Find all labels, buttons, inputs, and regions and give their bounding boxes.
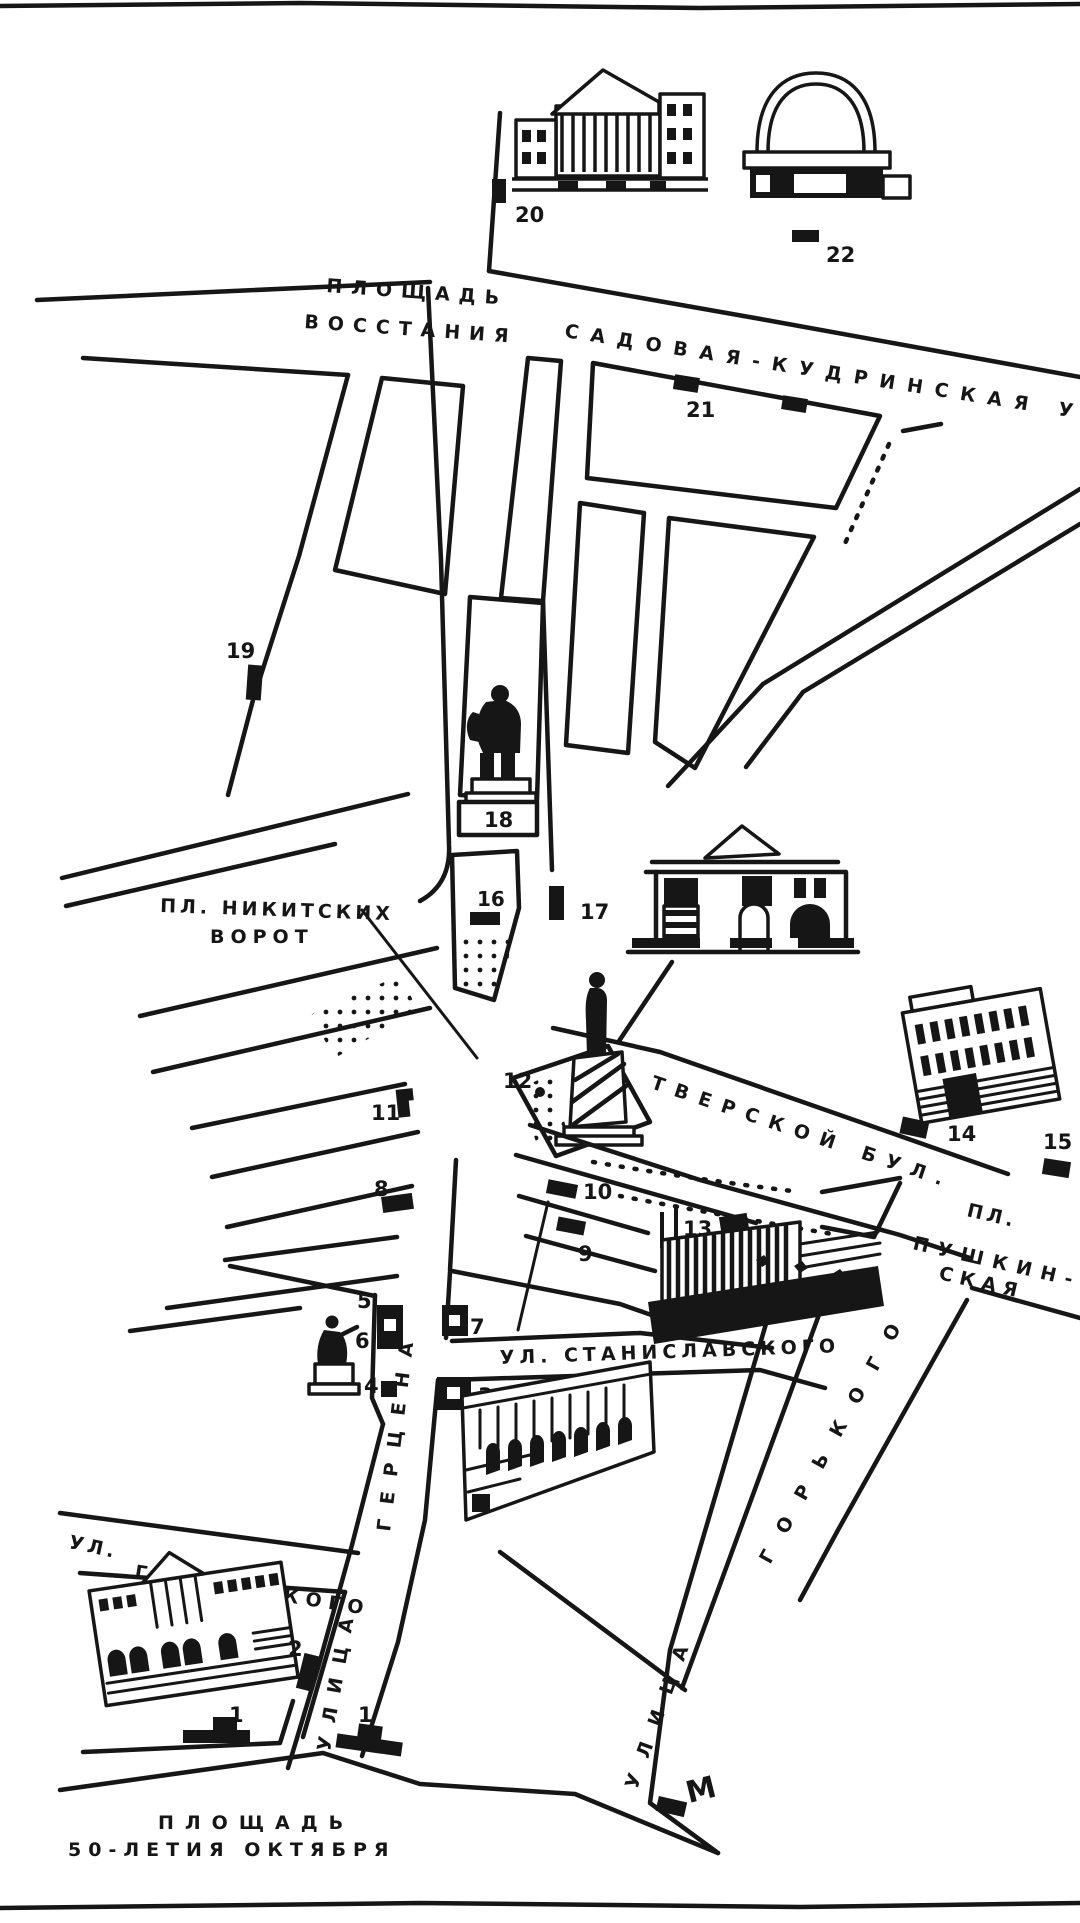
street-label-vosstaniya-1: ПЛОЩАДЬ (326, 275, 509, 310)
building-17-church (628, 826, 858, 952)
marker-9 (556, 1216, 586, 1235)
marker-19 (246, 665, 263, 701)
statue-18-pedestal (466, 779, 536, 802)
top-border (0, 3, 1080, 8)
marker-21-label: 21 (686, 398, 715, 422)
marker-10-label: 10 (583, 1180, 612, 1204)
block-16: 16 (452, 851, 519, 1000)
building-2-classical (85, 1537, 298, 1706)
marker-2-label: 2 (288, 1637, 303, 1661)
marker-16-label: 16 (477, 887, 505, 911)
marker-22-label: 22 (826, 243, 855, 267)
building-20-classical (512, 70, 708, 190)
street-label-granovskogo-1: УЛ. (67, 1531, 120, 1563)
statue-12-head (589, 972, 605, 988)
marker-19-label: 19 (226, 639, 255, 663)
bottom-border (0, 1903, 1080, 1908)
statue-12-figure (586, 988, 607, 1058)
marker-7-label: 7 (470, 1315, 485, 1339)
map-page: 18 20 22 ПЛОЩАДЬ ВОССТАНИЯ САДОВАЯ-КУДРИ… (0, 0, 1080, 1923)
marker-11-label: 11 (371, 1101, 400, 1125)
metro-symbol: М (682, 1770, 719, 1811)
marker-6-label: 6 (355, 1329, 370, 1353)
marker-20-label: 20 (515, 203, 544, 227)
marker-17 (549, 886, 564, 920)
building-14-modern (900, 975, 1060, 1123)
marker-1-right-label: 1 (358, 1703, 373, 1727)
marker-22 (792, 230, 819, 242)
marker-15-label: 15 (1043, 1130, 1072, 1154)
street-label-nikitskie-1: ПЛ. НИКИТСКИХ (160, 895, 394, 925)
marker-14-label: 14 (947, 1122, 976, 1146)
marker-15 (1042, 1158, 1071, 1178)
marker-13-label: 13 (683, 1217, 712, 1241)
metro-marker (656, 1796, 688, 1817)
marker-18-label: 18 (484, 808, 513, 832)
statue-18-head (491, 685, 509, 703)
street-label-pushkinskaya-1: ПЛ. (965, 1199, 1020, 1232)
monument-12-island: 12 (503, 972, 650, 1156)
marker-8-label: 8 (374, 1177, 389, 1201)
square-50-edge (60, 1753, 718, 1853)
city-map: 18 20 22 ПЛОЩАДЬ ВОССТАНИЯ САДОВАЯ-КУДРИ… (0, 0, 1080, 1923)
marker-10 (546, 1179, 578, 1198)
marker-17-label: 17 (580, 900, 609, 924)
marker-20 (492, 179, 506, 203)
marker-12-label: 12 (503, 1069, 532, 1093)
building-22-dome (744, 73, 910, 198)
street-label-stanislavskogo: УЛ. СТАНИСЛАВСКОГО (499, 1335, 840, 1369)
boulevard-bundle-west (62, 794, 437, 1331)
street-label-vosstaniya-2: ВОССТАНИЯ (304, 311, 519, 348)
statue-6-monument (309, 1316, 359, 1395)
monument-18-island: 18 (459, 597, 543, 835)
street-label-oktyabrya-1: ПЛОЩАДЬ (158, 1812, 354, 1834)
street-label-oktyabrya-2: 50-ЛЕТИЯ ОКТЯБРЯ (68, 1839, 396, 1861)
street-label-nikitskie-2: ВОРОТ (210, 926, 314, 948)
marker-9-label: 9 (578, 1242, 593, 1266)
marker-1-left-label: 1 (229, 1703, 244, 1727)
